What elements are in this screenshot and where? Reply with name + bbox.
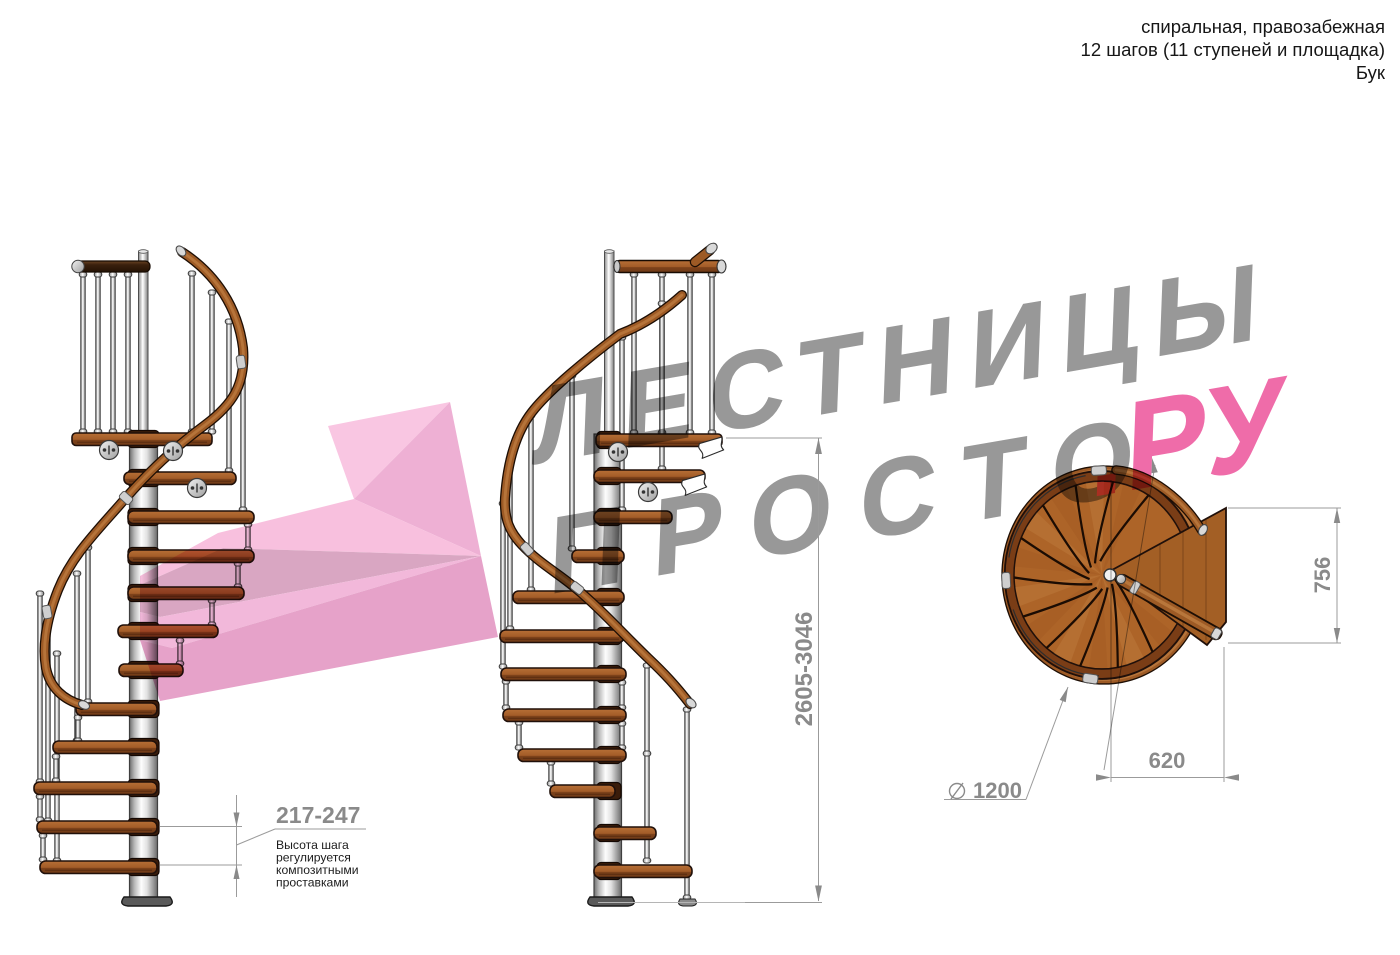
svg-text:620: 620 (1149, 748, 1186, 773)
svg-text:спиральная, правозабежная: спиральная, правозабежная (1141, 16, 1385, 37)
svg-text:Бук: Бук (1356, 62, 1386, 83)
svg-text:проставками: проставками (276, 876, 349, 890)
svg-text:1200: 1200 (973, 778, 1022, 803)
svg-text:217-247: 217-247 (276, 802, 360, 828)
svg-text:756: 756 (1310, 557, 1335, 594)
svg-text:2605-3046: 2605-3046 (791, 612, 818, 727)
svg-text:12 шагов (11 ступеней и площад: 12 шагов (11 ступеней и площадка) (1081, 39, 1385, 60)
